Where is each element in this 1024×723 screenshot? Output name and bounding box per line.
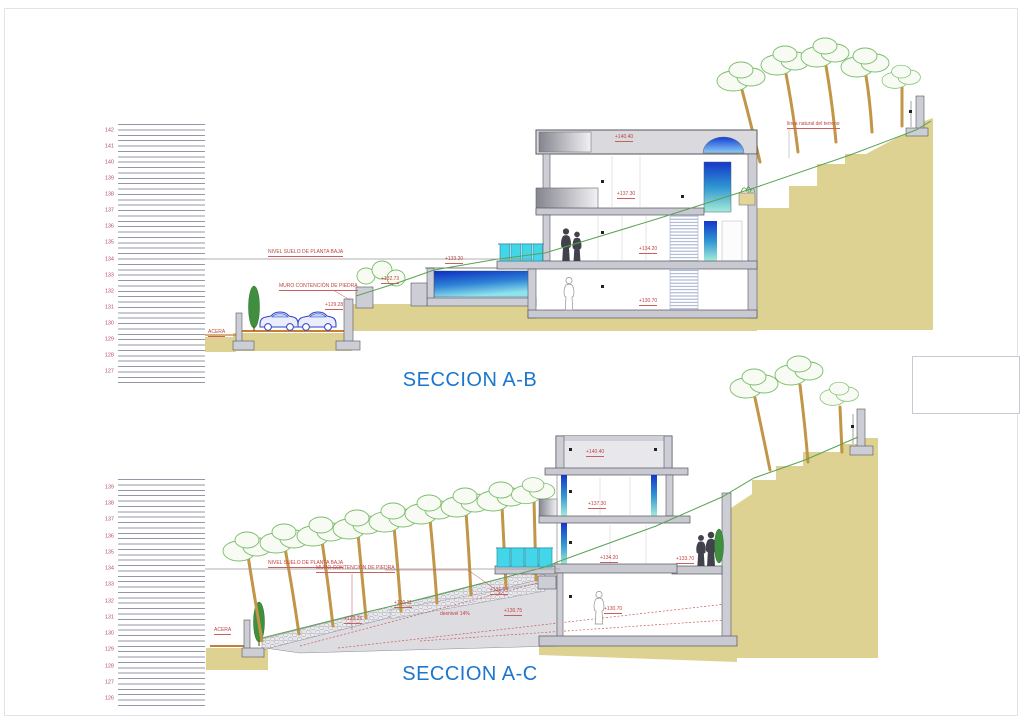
hill-wall-ac <box>850 409 873 455</box>
elev-street-wall-ab: +129.28 <box>325 303 343 310</box>
person-outline <box>564 277 574 310</box>
ruler-value: 134 <box>105 257 114 263</box>
person-silhouette <box>561 228 571 261</box>
ruler-value: 129 <box>105 648 114 654</box>
elev-basement-ab: +130.70 <box>639 299 657 306</box>
stair-hatch <box>670 215 698 261</box>
ruler-value: 130 <box>105 631 114 637</box>
car <box>260 312 298 330</box>
elev-ground-floor-ab: +134.20 <box>639 247 657 254</box>
elev-roof-ab: +140.40 <box>615 135 633 142</box>
ruler-value: 131 <box>105 305 114 311</box>
ruler-value: 141 <box>105 144 114 150</box>
elev-ground-floor-ac: +134.20 <box>600 556 618 563</box>
ruler-value: 134 <box>105 566 114 572</box>
ruler-value: 127 <box>105 370 114 376</box>
planter-box <box>739 193 755 205</box>
elevation-ruler-ac: 1391381371361351341331321311301291281271… <box>118 479 205 708</box>
label-acera-ab: ACERA <box>208 330 225 337</box>
glass-railing-ac <box>495 548 555 574</box>
window-glass <box>704 221 717 261</box>
elev-pool-ab: +133.20 <box>445 257 463 264</box>
ruler-value: 130 <box>105 321 114 327</box>
cypress-tree <box>715 529 724 563</box>
elev-roof-ac: +140.40 <box>586 450 604 457</box>
ruler-value: 139 <box>105 176 114 182</box>
ruler-value: 126 <box>105 696 114 702</box>
ruler-value: 137 <box>105 208 114 214</box>
elev-slope-4-ac: +130.75 <box>504 609 522 616</box>
elev-basement-ac: +130.70 <box>604 607 622 614</box>
label-muro-contencion-ab: MURO CONTENCIÓN DE PIEDRA <box>279 284 358 291</box>
ruler-value: 132 <box>105 289 114 295</box>
pool-ab <box>411 268 536 306</box>
ruler-value: 132 <box>105 599 114 605</box>
drawing-sheet: 1421411401391381371361351341331321311301… <box>0 0 1024 723</box>
building-ac <box>538 436 737 646</box>
ruler-value: 138 <box>105 192 114 198</box>
elev-first-floor-ac: +137.30 <box>588 502 606 509</box>
elev-first-floor-ab: +137.30 <box>617 192 635 199</box>
building-ab <box>497 130 757 318</box>
person-outline <box>594 591 604 624</box>
ruler-value: 135 <box>105 550 114 556</box>
car <box>298 312 336 330</box>
ruler-value: 136 <box>105 534 114 540</box>
ruler-value: 133 <box>105 583 114 589</box>
person-silhouette <box>696 535 705 566</box>
label-desnivel-ac: desnivel 14% <box>440 612 470 618</box>
label-linea-terreno-ab: linea natural del terreno <box>787 122 840 129</box>
hill-wall-ab <box>906 96 928 136</box>
ruler-value: 136 <box>105 225 114 231</box>
elev-garden-ab: +132.73 <box>381 277 399 284</box>
window-glass <box>704 162 731 212</box>
door <box>722 221 742 261</box>
section-ab-title: SECCION A-B <box>370 369 570 392</box>
elevation-ruler-ab: 1421411401391381371361351341331321311301… <box>118 124 205 387</box>
ruler-value: 139 <box>105 485 114 491</box>
label-nivel-suelo-ab: NIVEL SUELO DE PLANTA BAJA <box>268 250 343 257</box>
ruler-value: 129 <box>105 337 114 343</box>
legend-box <box>912 356 1020 414</box>
ruler-value: 128 <box>105 354 114 360</box>
window-glass <box>561 475 567 516</box>
ruler-value: 140 <box>105 160 114 166</box>
ruler-value: 133 <box>105 273 114 279</box>
ruler-value: 128 <box>105 664 114 670</box>
ruler-value: 131 <box>105 615 114 621</box>
elev-slope-3-ac: +131.04 <box>490 588 508 595</box>
ruler-value: 138 <box>105 501 114 507</box>
ruler-value: 142 <box>105 128 114 134</box>
stair-hatch <box>670 269 698 312</box>
elev-slope-1-ac: +129.25 <box>344 617 362 624</box>
garden-ab <box>356 261 405 308</box>
label-muro-contencion-ac: MURO CONTENCIÓN DE PIEDRA <box>316 566 395 573</box>
cypress-tree <box>249 286 260 331</box>
ruler-value: 127 <box>105 680 114 686</box>
section-ac-title: SECCION A-C <box>370 663 570 686</box>
label-acera-ac: ACERA <box>214 628 231 635</box>
elev-slope-2-ac: +130.11 <box>394 601 412 608</box>
ruler-value: 137 <box>105 518 114 524</box>
elev-terrace-ac: +133.70 <box>676 557 694 564</box>
person-silhouette <box>573 232 582 261</box>
ruler-value: 135 <box>105 241 114 247</box>
window-glass <box>651 475 657 516</box>
